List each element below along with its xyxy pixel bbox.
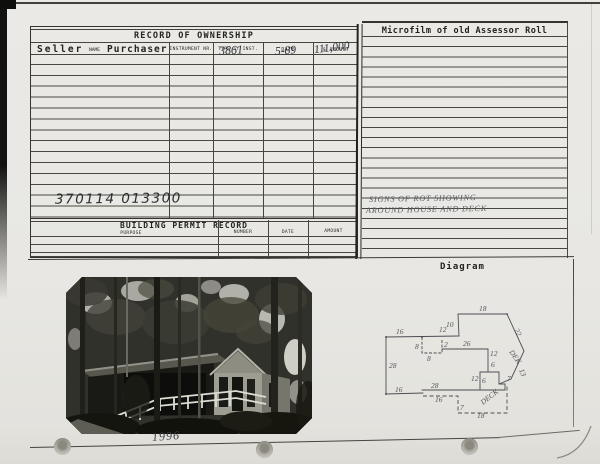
punch-hole <box>54 438 71 455</box>
dimension-label: 6 <box>482 376 486 385</box>
dimension-label: 7 <box>460 403 464 412</box>
scan-top-left-corner-mark <box>0 0 16 9</box>
floor-plan-sketch: 161210182288226126DEK13126728162816718DE… <box>368 300 580 426</box>
dimension-label: 18 <box>479 304 487 313</box>
column-separator <box>213 42 214 219</box>
punch-hole <box>461 438 478 455</box>
property-photo <box>66 277 312 434</box>
dimension-label: 6 <box>491 360 495 369</box>
title-top-inner-line <box>31 29 357 30</box>
card-right-edge <box>591 4 592 234</box>
scan-left-edge-shadow <box>0 0 7 300</box>
dimension-label: 16 <box>395 385 403 394</box>
column-separator <box>263 42 264 219</box>
corner-curl-mark <box>553 420 597 462</box>
dimension-label: 8 <box>415 342 419 351</box>
scanned-assessor-card: RECORD OF OWNERSHIP Seller NAME Purchase… <box>0 0 600 464</box>
permit-column-separator <box>268 220 269 259</box>
punch-hole <box>256 441 273 458</box>
scan-top-edge-line <box>4 2 600 4</box>
column-header-name: NAME <box>89 48 100 53</box>
parcel-number: 370114 013300 <box>55 190 182 207</box>
dimension-label: 7 <box>507 374 511 383</box>
microfilm-note-line1: SIGNS OF ROT SHOWING <box>369 193 477 204</box>
dimension-label: 28 <box>431 381 439 390</box>
column-header-instrument: INSTRUMENT NR. <box>169 47 213 52</box>
entry-date: 5-89 <box>275 44 297 57</box>
dimension-label: DEK <box>507 347 524 366</box>
dimension-label: 13 <box>517 367 528 378</box>
permit-column-separator <box>218 220 219 259</box>
dimension-label: 8 <box>427 354 431 363</box>
door <box>232 377 243 411</box>
dimension-label: 28 <box>389 361 397 370</box>
dimension-label: 2 <box>444 340 448 349</box>
dimension-label: 18 <box>477 411 485 420</box>
ownership-table: RECORD OF OWNERSHIP Seller NAME Purchase… <box>30 26 358 258</box>
microfilm-section: Microfilm of old Assessor Roll SIGNS OF … <box>362 21 568 258</box>
dimension-label: 12 <box>490 349 498 358</box>
dimension-label: 12 <box>471 374 479 383</box>
title-bottom-line <box>31 42 357 43</box>
dimension-label: 10 <box>446 320 454 329</box>
photo-scene <box>66 277 312 434</box>
permit-column-separator <box>308 220 309 259</box>
dimension-label: 16 <box>435 395 443 404</box>
photo-caption-year: 1996 <box>152 428 181 445</box>
dimension-label: 16 <box>396 327 404 336</box>
dimension-label: 26 <box>463 339 471 348</box>
column-separator <box>313 42 314 219</box>
ownership-title: RECORD OF OWNERSHIP <box>31 31 357 41</box>
closet-notch-outline <box>422 337 442 353</box>
diagram-title: Diagram <box>440 262 485 272</box>
entry-type-of-inst: 3861 <box>219 42 244 58</box>
microfilm-ruled-lines <box>362 27 567 258</box>
permit-divider-line <box>31 218 357 219</box>
